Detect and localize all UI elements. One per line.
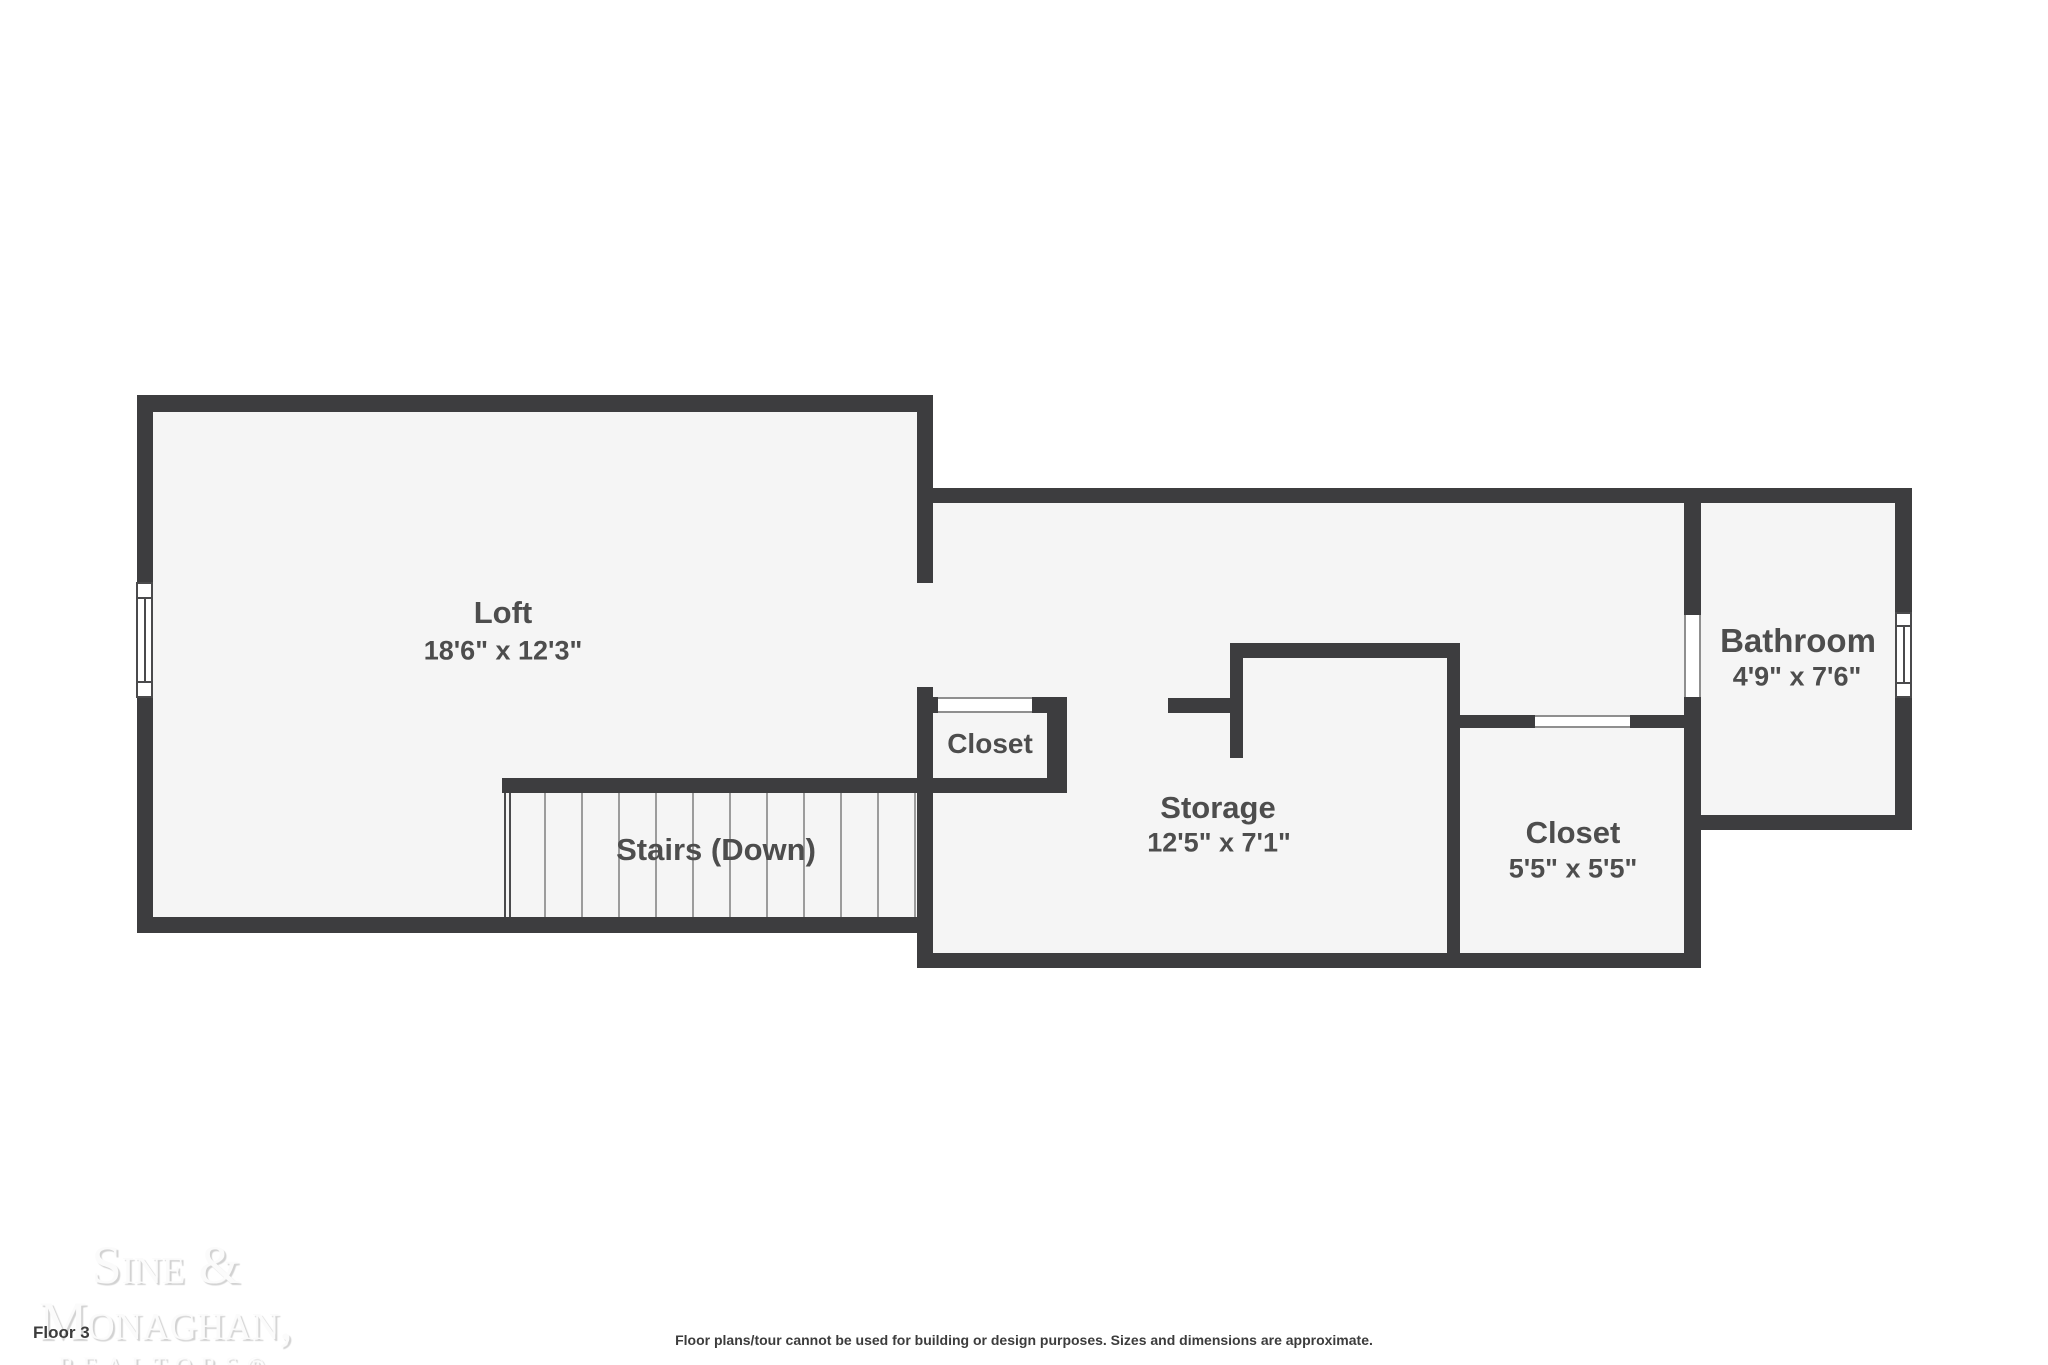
wall-loft-top xyxy=(137,395,933,412)
wall-loft-right-lower xyxy=(917,687,933,968)
bathroom-label: Bathroom xyxy=(1720,622,1876,660)
wall-storage-notch-stub xyxy=(1168,698,1230,713)
closet-right-door-opening xyxy=(1535,715,1630,728)
wall-storage-right xyxy=(1447,658,1460,968)
stairs-label: Stairs (Down) xyxy=(616,832,816,868)
storage-label: Storage xyxy=(1160,790,1275,826)
closet-small-door-opening xyxy=(938,697,1032,713)
wall-bathroom-bottom xyxy=(1701,815,1912,830)
loft-label: Loft xyxy=(474,595,533,631)
bathroom-window-icon xyxy=(1895,612,1912,698)
closet-small-label: Closet xyxy=(947,728,1033,760)
wall-closet-small-right xyxy=(1047,697,1067,793)
floor-number-label: Floor 3 xyxy=(33,1323,90,1343)
loft-window-icon xyxy=(136,582,153,698)
stairs-left-edge xyxy=(504,793,511,917)
closet-right-label: Closet xyxy=(1526,815,1621,851)
closet-right-dims: 5'5" x 5'5" xyxy=(1509,854,1638,885)
middle-section-floor xyxy=(917,488,1701,968)
logo-line-realtors: REALTORS® xyxy=(18,1354,314,1365)
wall-middle-bottom xyxy=(917,953,1701,968)
wall-loft-bottom xyxy=(137,917,933,933)
wall-storage-notch-vertical xyxy=(1230,643,1243,758)
floor-plan-page: Loft 18'6" x 12'3" Stairs (Down) Closet … xyxy=(0,0,2048,1365)
wall-middle-top xyxy=(917,488,1912,503)
loft-dims: 18'6" x 12'3" xyxy=(424,636,583,667)
bathroom-dims: 4'9" x 7'6" xyxy=(1733,662,1862,693)
wall-stairs-top xyxy=(502,778,1067,793)
bathroom-door-opening xyxy=(1684,615,1701,697)
wall-bathroom-left xyxy=(1684,503,1701,968)
storage-dims: 12'5" x 7'1" xyxy=(1147,828,1291,859)
wall-storage-top xyxy=(1230,643,1460,658)
logo-line-sine: Sine & xyxy=(18,1238,314,1292)
disclaimer-text: Floor plans/tour cannot be used for buil… xyxy=(675,1332,1373,1348)
realtor-logo: Sine & Monaghan, REALTORS® xyxy=(18,1238,314,1365)
